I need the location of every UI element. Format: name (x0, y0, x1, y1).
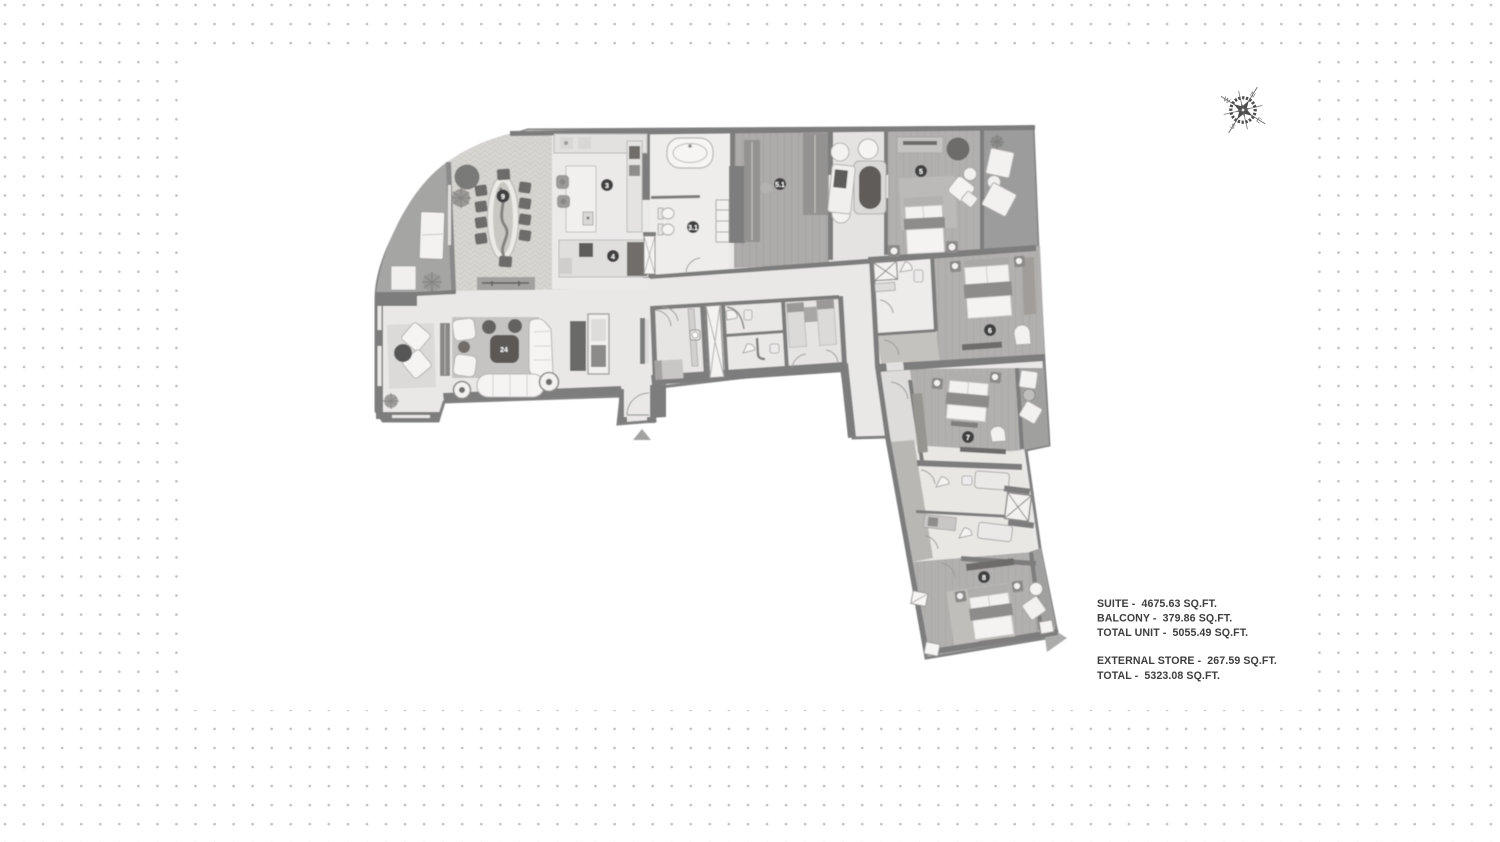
svg-text:8: 8 (982, 575, 986, 582)
svg-text:5: 5 (919, 169, 923, 176)
svg-text:4: 4 (611, 254, 615, 261)
svg-text:3: 3 (605, 183, 609, 190)
svg-text:SUITE - 4675.63 SQ.FT.: SUITE - 4675.63 SQ.FT. (1097, 598, 1217, 610)
svg-text:EXTERNAL STORE - 267.59 SQ.FT: EXTERNAL STORE - 267.59 SQ.FT. (1097, 655, 1277, 667)
svg-text:5.1: 5.1 (775, 182, 785, 189)
svg-text:3.1: 3.1 (688, 225, 698, 232)
svg-text:TOTAL UNIT - 5055.49 SQ.FT.: TOTAL UNIT - 5055.49 SQ.FT. (1097, 627, 1248, 639)
svg-text:6: 6 (988, 328, 992, 335)
svg-text:24: 24 (500, 347, 508, 354)
svg-text:TOTAL - 5323.08 SQ.FT.: TOTAL - 5323.08 SQ.FT. (1097, 670, 1220, 682)
svg-text:BALCONY - 379.86 SQ.FT.: BALCONY - 379.86 SQ.FT. (1097, 613, 1232, 625)
svg-text:7: 7 (966, 435, 970, 442)
svg-text:9: 9 (501, 194, 505, 201)
